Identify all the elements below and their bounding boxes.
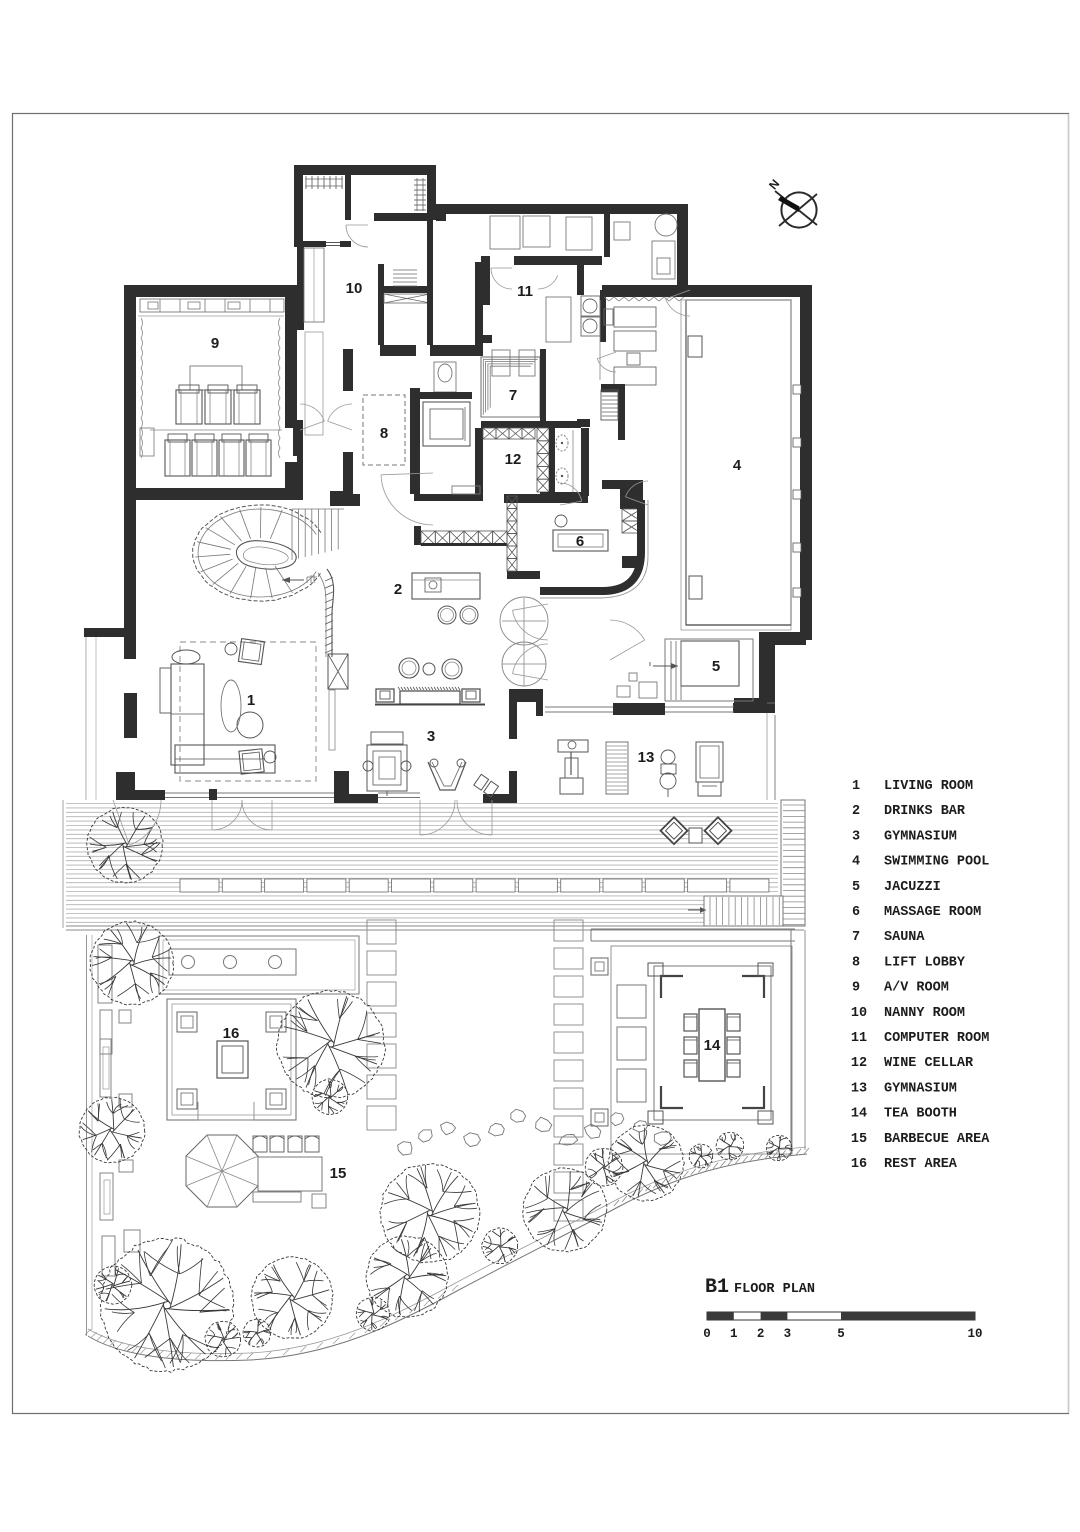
svg-text:16: 16: [851, 1157, 867, 1172]
svg-text:5: 5: [712, 658, 720, 675]
svg-text:1: 1: [852, 779, 860, 794]
svg-text:5: 5: [837, 1327, 845, 1341]
svg-text:10: 10: [967, 1327, 982, 1341]
svg-text:REST AREA: REST AREA: [884, 1157, 958, 1172]
svg-text:SWIMMING POOL: SWIMMING POOL: [884, 855, 989, 870]
svg-text:9: 9: [852, 981, 860, 996]
svg-text:15: 15: [330, 1165, 347, 1182]
svg-text:MASSAGE ROOM: MASSAGE ROOM: [884, 905, 981, 920]
svg-text:11: 11: [851, 1031, 867, 1046]
svg-text:14: 14: [851, 1107, 867, 1122]
svg-text:GYMNASIUM: GYMNASIUM: [884, 1081, 957, 1096]
svg-text:B1: B1: [705, 1276, 729, 1299]
svg-text:13: 13: [638, 749, 655, 766]
svg-text:GYMNASIUM: GYMNASIUM: [884, 829, 957, 844]
svg-text:5: 5: [852, 880, 860, 895]
svg-text:6: 6: [576, 533, 584, 550]
svg-text:7: 7: [852, 930, 860, 945]
svg-text:1: 1: [730, 1327, 738, 1341]
svg-text:10: 10: [851, 1006, 867, 1021]
svg-text:DRINKS BAR: DRINKS BAR: [884, 804, 966, 819]
svg-text:12: 12: [851, 1056, 867, 1071]
svg-text:8: 8: [380, 425, 388, 442]
svg-text:14: 14: [704, 1037, 721, 1054]
svg-text:11: 11: [517, 283, 533, 300]
svg-text:WINE CELLAR: WINE CELLAR: [884, 1056, 974, 1071]
svg-text:2: 2: [757, 1327, 765, 1341]
svg-text:SAUNA: SAUNA: [884, 930, 925, 945]
svg-text:7: 7: [509, 387, 517, 404]
svg-text:3: 3: [852, 829, 860, 844]
svg-text:4: 4: [733, 457, 742, 474]
svg-text:8: 8: [852, 955, 860, 970]
svg-text:A/V ROOM: A/V ROOM: [884, 981, 949, 996]
svg-text:9: 9: [211, 335, 219, 352]
svg-text:BARBECUE AREA: BARBECUE AREA: [884, 1132, 990, 1147]
svg-text:TEA BOOTH: TEA BOOTH: [884, 1107, 957, 1122]
svg-text:3: 3: [427, 728, 435, 745]
svg-text:10: 10: [346, 280, 363, 297]
svg-text:16: 16: [223, 1025, 240, 1042]
svg-text:2: 2: [394, 581, 402, 598]
svg-text:0: 0: [703, 1327, 711, 1341]
svg-text:15: 15: [851, 1132, 867, 1147]
svg-text:12: 12: [505, 451, 522, 468]
svg-text:COMPUTER ROOM: COMPUTER ROOM: [884, 1031, 989, 1046]
svg-text:JACUZZI: JACUZZI: [884, 880, 941, 895]
svg-text:1: 1: [247, 692, 255, 709]
svg-text:LIFT LOBBY: LIFT LOBBY: [884, 955, 966, 970]
svg-text:4: 4: [852, 855, 860, 870]
svg-text:2: 2: [852, 804, 860, 819]
svg-text:LIVING ROOM: LIVING ROOM: [884, 779, 973, 794]
svg-text:FLOOR PLAN: FLOOR PLAN: [734, 1282, 815, 1297]
svg-text:6: 6: [852, 905, 860, 920]
svg-text:NANNY ROOM: NANNY ROOM: [884, 1006, 965, 1021]
svg-text:13: 13: [851, 1081, 867, 1096]
svg-text:3: 3: [784, 1327, 792, 1341]
